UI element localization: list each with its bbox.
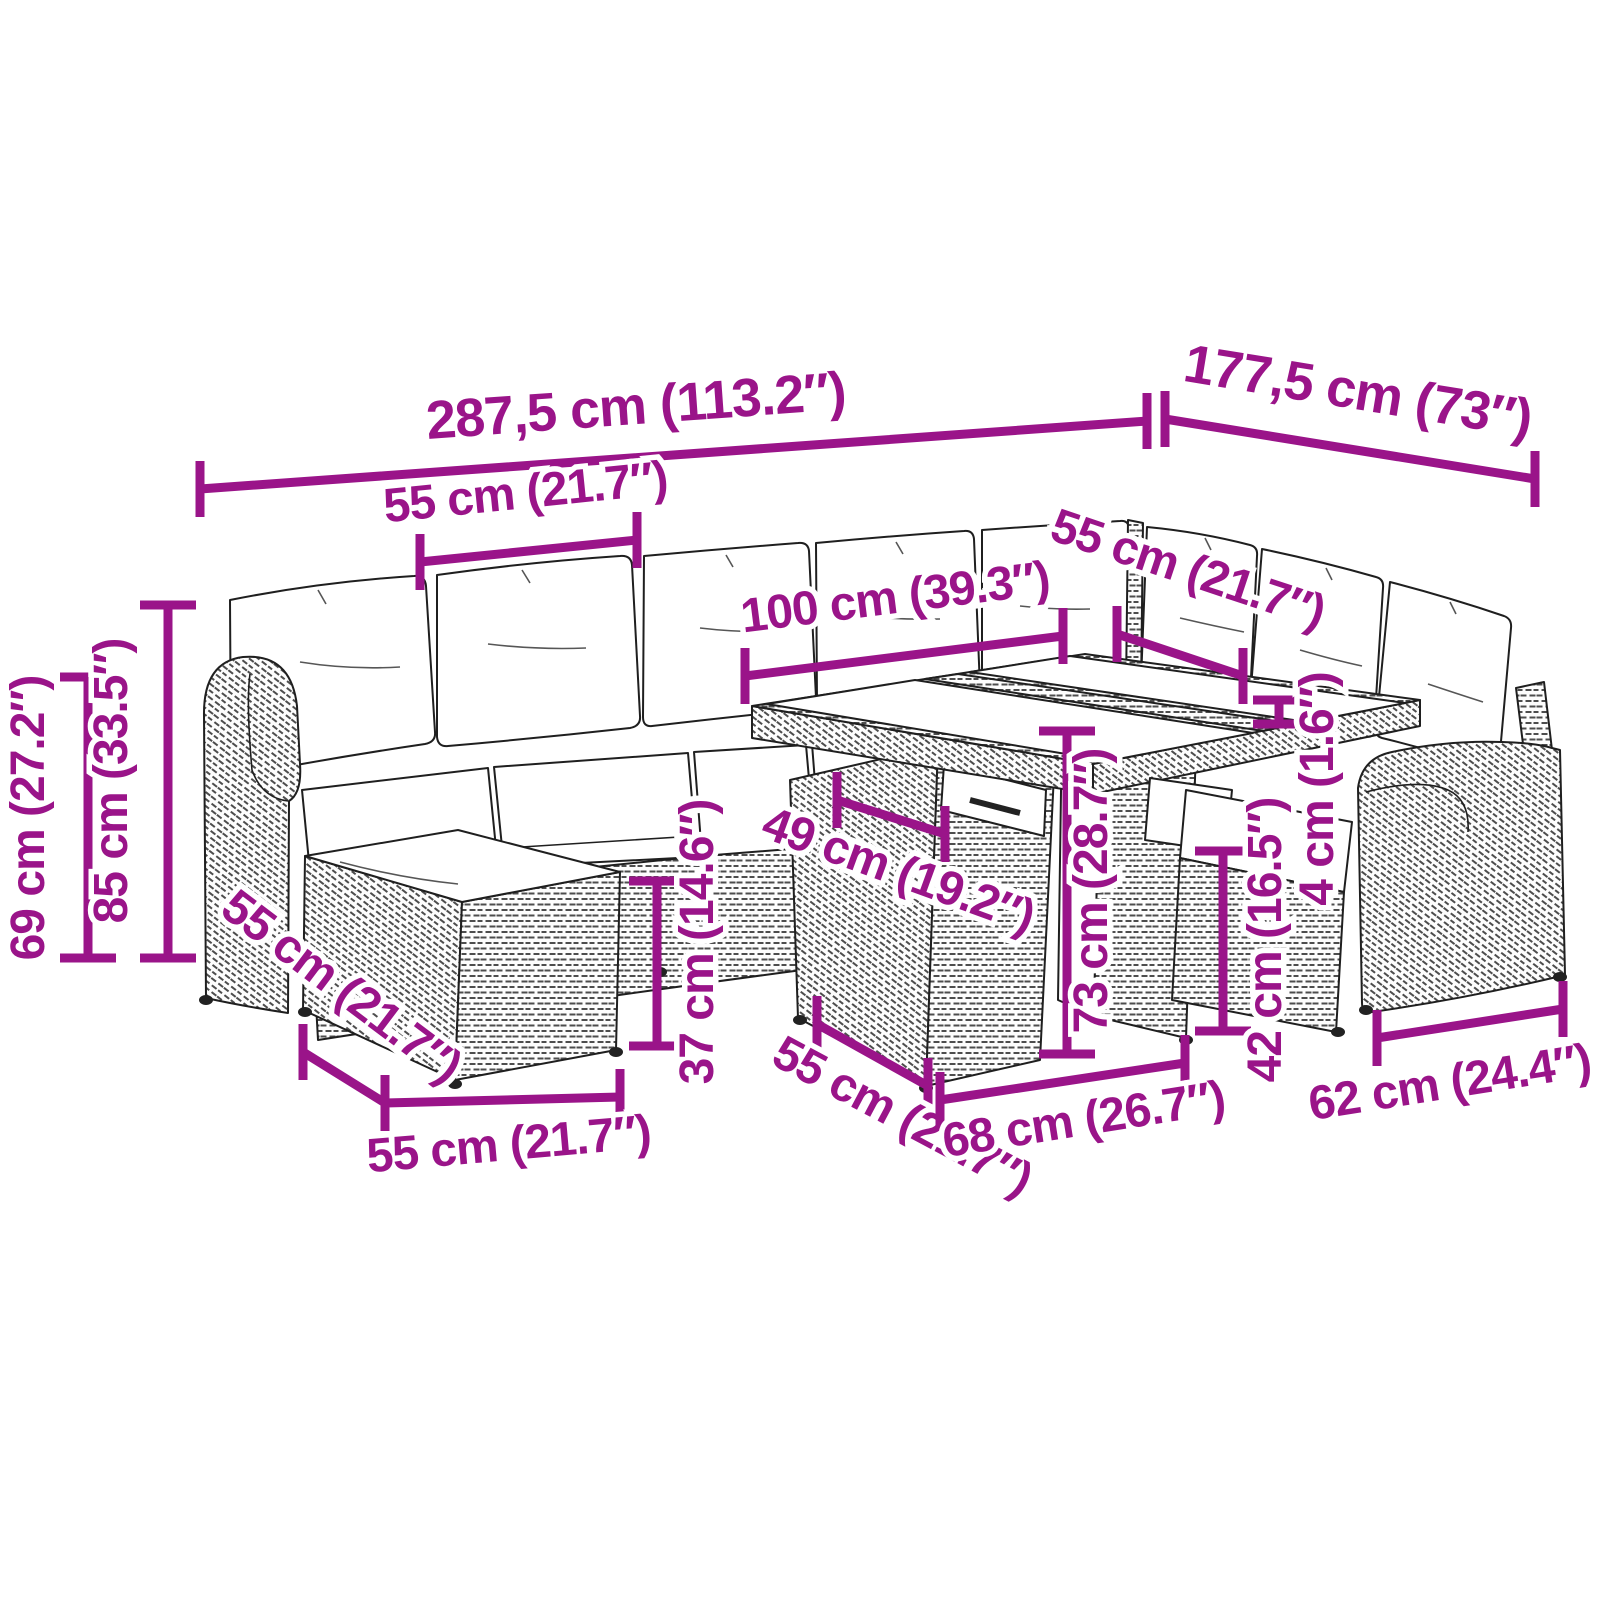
dim-label-ottoman-height: 42 cm (16.5″): [1239, 798, 1292, 1083]
dim-label-ottoman-left-width: 55 cm (21.7″): [364, 1106, 652, 1184]
diagram-canvas: 287,5 cm (113.2″) 177,5 cm (73″) 55 cm (…: [0, 0, 1600, 1600]
dim-ottoman-left-width: 55 cm (21.7″): [364, 1069, 652, 1183]
dim-right-module-width: 62 cm (24.4″): [1305, 981, 1595, 1131]
dim-overall-width: 287,5 cm (113.2″): [200, 361, 1147, 517]
dim-label-table-top-thickness: 4 cm (1.6″): [1291, 672, 1344, 905]
dim-overall-depth: 177,5 cm (73″): [1165, 333, 1536, 507]
dim-label-overall-width: 287,5 cm (113.2″): [424, 361, 847, 451]
left-ottoman: [303, 830, 620, 1080]
product-dimension-diagram: 287,5 cm (113.2″) 177,5 cm (73″) 55 cm (…: [0, 0, 1600, 1600]
dim-label-right-module-width: 62 cm (24.4″): [1305, 1034, 1595, 1131]
dim-label-seat-height: 37 cm (14.6″): [671, 800, 724, 1085]
dim-label-table-base-width: 68 cm (26.7″): [939, 1071, 1229, 1168]
dim-total-height: 85 cm (33.5″): [85, 605, 196, 958]
dim-label-total-height: 85 cm (33.5″): [85, 639, 138, 924]
dim-label-armrest-height: 69 cm (27.2″): [2, 676, 55, 961]
dim-label-table-height: 73 cm (28.7″): [1065, 749, 1118, 1034]
